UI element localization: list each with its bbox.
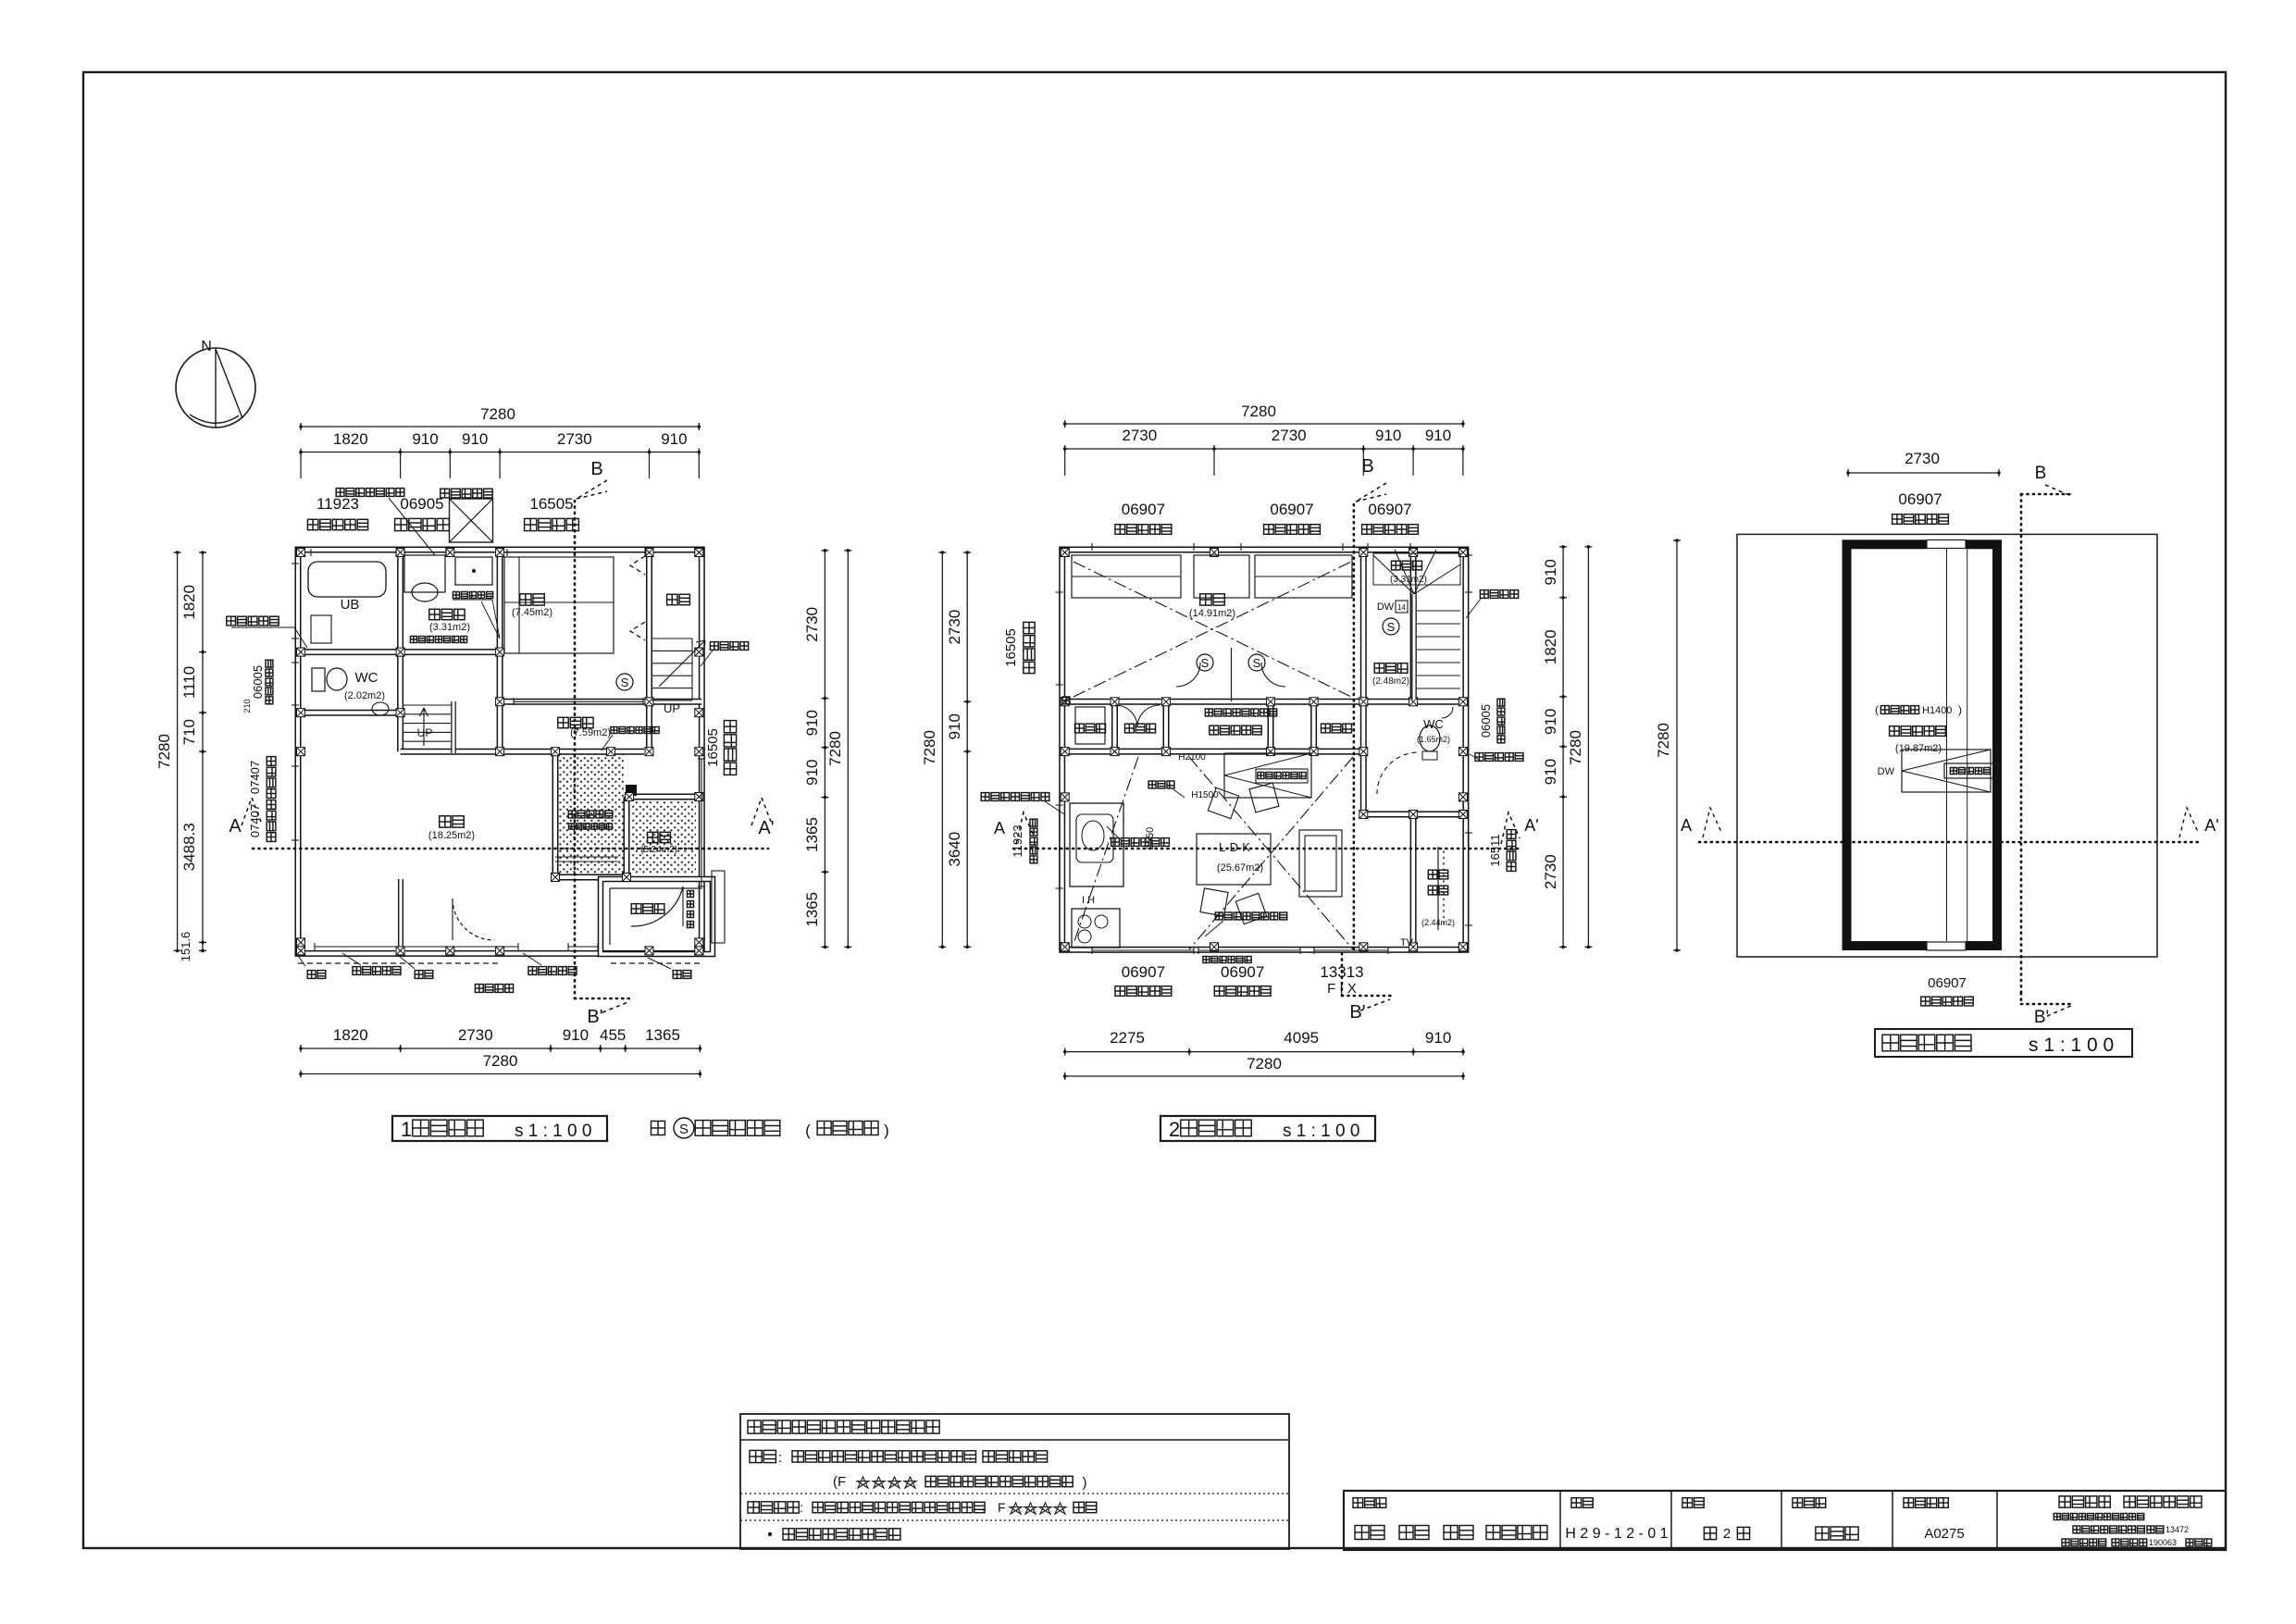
svg-text:H1500: H1500 xyxy=(1191,790,1219,800)
svg-text:16505: 16505 xyxy=(1003,628,1019,667)
svg-text:S: S xyxy=(1387,620,1396,634)
svg-text:DW: DW xyxy=(1377,601,1395,613)
svg-text:7280: 7280 xyxy=(480,405,515,423)
svg-text:2730: 2730 xyxy=(458,1026,493,1044)
svg-text:7280: 7280 xyxy=(1241,403,1276,420)
svg-text:06907: 06907 xyxy=(1270,501,1313,518)
svg-text:s 1 : 1 0 0: s 1 : 1 0 0 xyxy=(515,1122,591,1141)
svg-text:(18.25m2): (18.25m2) xyxy=(428,830,475,841)
svg-text:11923: 11923 xyxy=(1011,824,1024,857)
svg-text:→: → xyxy=(974,1500,987,1515)
svg-text:(5.24m2): (5.24m2) xyxy=(640,845,677,855)
svg-text:1: 1 xyxy=(401,1118,412,1141)
svg-text:7280: 7280 xyxy=(921,730,938,765)
svg-text:910: 910 xyxy=(1375,427,1401,444)
svg-text:1820: 1820 xyxy=(1542,629,1559,664)
svg-text:B: B xyxy=(2035,464,2047,483)
svg-text:06907: 06907 xyxy=(1122,963,1165,981)
svg-text:A: A xyxy=(229,816,242,837)
svg-text:190063: 190063 xyxy=(2149,1538,2177,1547)
svg-text:DW: DW xyxy=(1878,766,1895,777)
svg-text:): ) xyxy=(1083,1475,1087,1491)
svg-text:07407: 07407 xyxy=(248,761,262,794)
svg-text:(3.31m2): (3.31m2) xyxy=(1390,575,1427,585)
svg-text:): ) xyxy=(1958,703,1962,716)
svg-text:7280: 7280 xyxy=(1655,723,1672,758)
svg-text:(2.02m2): (2.02m2) xyxy=(344,690,385,701)
svg-text::: : xyxy=(800,1500,803,1515)
svg-text:→: → xyxy=(962,1449,975,1465)
svg-text:06907: 06907 xyxy=(1221,963,1264,981)
svg-text:(F: (F xyxy=(833,1474,846,1490)
svg-text:7280: 7280 xyxy=(483,1052,518,1070)
svg-text:F: F xyxy=(998,1500,1006,1515)
svg-text:06907: 06907 xyxy=(1368,501,1411,518)
svg-text:910: 910 xyxy=(563,1026,589,1044)
svg-text:H2100: H2100 xyxy=(1178,752,1206,762)
svg-text:S: S xyxy=(679,1122,689,1137)
svg-text:910: 910 xyxy=(946,713,963,739)
svg-text:s 1 : 1 0 0: s 1 : 1 0 0 xyxy=(1283,1122,1359,1141)
svg-text:H1400: H1400 xyxy=(1922,705,1952,716)
svg-text:UP: UP xyxy=(664,701,680,715)
svg-text:2730: 2730 xyxy=(1272,427,1307,444)
svg-text:06907: 06907 xyxy=(1122,501,1165,518)
svg-text:S: S xyxy=(1253,656,1261,670)
svg-text:(19.87m2): (19.87m2) xyxy=(1895,743,1942,754)
svg-text:14: 14 xyxy=(1397,603,1406,612)
svg-text:(25.67m2): (25.67m2) xyxy=(1217,862,1263,874)
svg-text:(: ( xyxy=(1875,703,1879,716)
svg-text:910: 910 xyxy=(803,710,821,736)
svg-text:2730: 2730 xyxy=(803,607,821,642)
svg-text:A': A' xyxy=(2204,816,2218,835)
svg-text:1365: 1365 xyxy=(645,1026,680,1044)
svg-text:): ) xyxy=(884,1122,889,1139)
svg-text:3488.3: 3488.3 xyxy=(180,823,198,871)
svg-text:2275: 2275 xyxy=(1110,1029,1145,1047)
svg-text:151.6: 151.6 xyxy=(179,932,192,962)
svg-text:(1.65m2): (1.65m2) xyxy=(1417,735,1450,744)
svg-text:A: A xyxy=(1681,816,1692,835)
svg-text:2550: 2550 xyxy=(1145,827,1156,849)
svg-text:I H: I H xyxy=(1082,895,1095,906)
svg-text:1820: 1820 xyxy=(333,430,368,448)
svg-text:06005: 06005 xyxy=(251,665,265,699)
svg-text:13472: 13472 xyxy=(2166,1525,2189,1534)
svg-text:A0275: A0275 xyxy=(1924,1526,1964,1542)
svg-text:(7.59m2): (7.59m2) xyxy=(570,727,611,738)
svg-text:2: 2 xyxy=(1723,1526,1731,1542)
svg-text:1820: 1820 xyxy=(180,585,198,620)
svg-text:3640: 3640 xyxy=(946,832,963,867)
svg-text:16505: 16505 xyxy=(529,495,573,513)
svg-text:WC: WC xyxy=(1423,717,1444,731)
svg-text::: : xyxy=(778,1450,782,1466)
svg-text:910: 910 xyxy=(1542,709,1559,735)
svg-text:910: 910 xyxy=(1425,427,1451,444)
svg-text:A': A' xyxy=(758,818,774,838)
svg-text:A: A xyxy=(994,819,1005,837)
svg-text:910: 910 xyxy=(1542,559,1559,585)
svg-text:1820: 1820 xyxy=(333,1026,368,1044)
svg-text:(14.91m2): (14.91m2) xyxy=(1189,608,1235,619)
svg-text:H 2 9 - 1 2 - 0 1: H 2 9 - 1 2 - 0 1 xyxy=(1565,1526,1668,1542)
svg-text:1365: 1365 xyxy=(803,892,821,927)
svg-text:7280: 7280 xyxy=(155,734,173,769)
svg-text:06907: 06907 xyxy=(1898,490,1942,508)
svg-text:TV: TV xyxy=(1400,937,1414,948)
svg-text:(3.31m2): (3.31m2) xyxy=(429,622,470,633)
svg-text:455: 455 xyxy=(600,1026,626,1044)
svg-text:(: ( xyxy=(805,1122,811,1139)
svg-text:UP: UP xyxy=(417,726,433,739)
svg-text:1365: 1365 xyxy=(803,817,821,852)
svg-text:16505: 16505 xyxy=(705,728,721,767)
svg-text:2730: 2730 xyxy=(1542,854,1559,889)
svg-text:11923: 11923 xyxy=(316,495,359,513)
svg-text:06005: 06005 xyxy=(1479,704,1493,738)
svg-text:2730: 2730 xyxy=(1122,427,1157,444)
svg-text:B': B' xyxy=(2034,1008,2049,1027)
svg-text:910: 910 xyxy=(1542,759,1559,785)
svg-text:910: 910 xyxy=(412,430,438,448)
svg-text:06907: 06907 xyxy=(1928,975,1967,991)
svg-text:S: S xyxy=(1201,656,1210,670)
svg-text:B': B' xyxy=(587,1007,602,1027)
svg-text:07407: 07407 xyxy=(248,804,262,837)
svg-text:7280: 7280 xyxy=(826,731,844,766)
svg-text:(7.45m2): (7.45m2) xyxy=(512,607,552,618)
svg-text:WC: WC xyxy=(355,670,379,686)
svg-text:(2.44m2): (2.44m2) xyxy=(1421,918,1455,927)
svg-text:7280: 7280 xyxy=(1567,730,1584,765)
svg-text:L-D-K: L-D-K xyxy=(1219,840,1250,854)
svg-text:7280: 7280 xyxy=(1247,1055,1282,1072)
svg-text:S: S xyxy=(621,676,629,689)
svg-text:s 1 : 1 0 0: s 1 : 1 0 0 xyxy=(2029,1035,2114,1056)
svg-text:16511: 16511 xyxy=(1488,834,1502,866)
svg-text:A': A' xyxy=(1524,816,1538,835)
svg-text:210: 210 xyxy=(242,699,252,713)
svg-text:UB: UB xyxy=(341,597,360,613)
svg-text:B: B xyxy=(590,459,602,479)
svg-text:710: 710 xyxy=(180,719,198,745)
svg-text:910: 910 xyxy=(803,760,821,786)
svg-text:910: 910 xyxy=(661,430,687,448)
svg-text:2730: 2730 xyxy=(1905,450,1940,467)
svg-text:2730: 2730 xyxy=(946,610,963,645)
svg-text:(2.48m2): (2.48m2) xyxy=(1372,676,1409,687)
svg-text:1110: 1110 xyxy=(180,666,198,699)
svg-text:B: B xyxy=(1361,456,1373,477)
svg-text:910: 910 xyxy=(1425,1029,1451,1047)
svg-text:2730: 2730 xyxy=(557,430,592,448)
svg-text:N: N xyxy=(201,339,212,354)
svg-text:06905: 06905 xyxy=(400,495,443,513)
svg-text:4095: 4095 xyxy=(1284,1029,1319,1047)
svg-text:910: 910 xyxy=(462,430,488,448)
svg-text:2: 2 xyxy=(1169,1118,1180,1141)
svg-text:B': B' xyxy=(1349,1002,1365,1023)
